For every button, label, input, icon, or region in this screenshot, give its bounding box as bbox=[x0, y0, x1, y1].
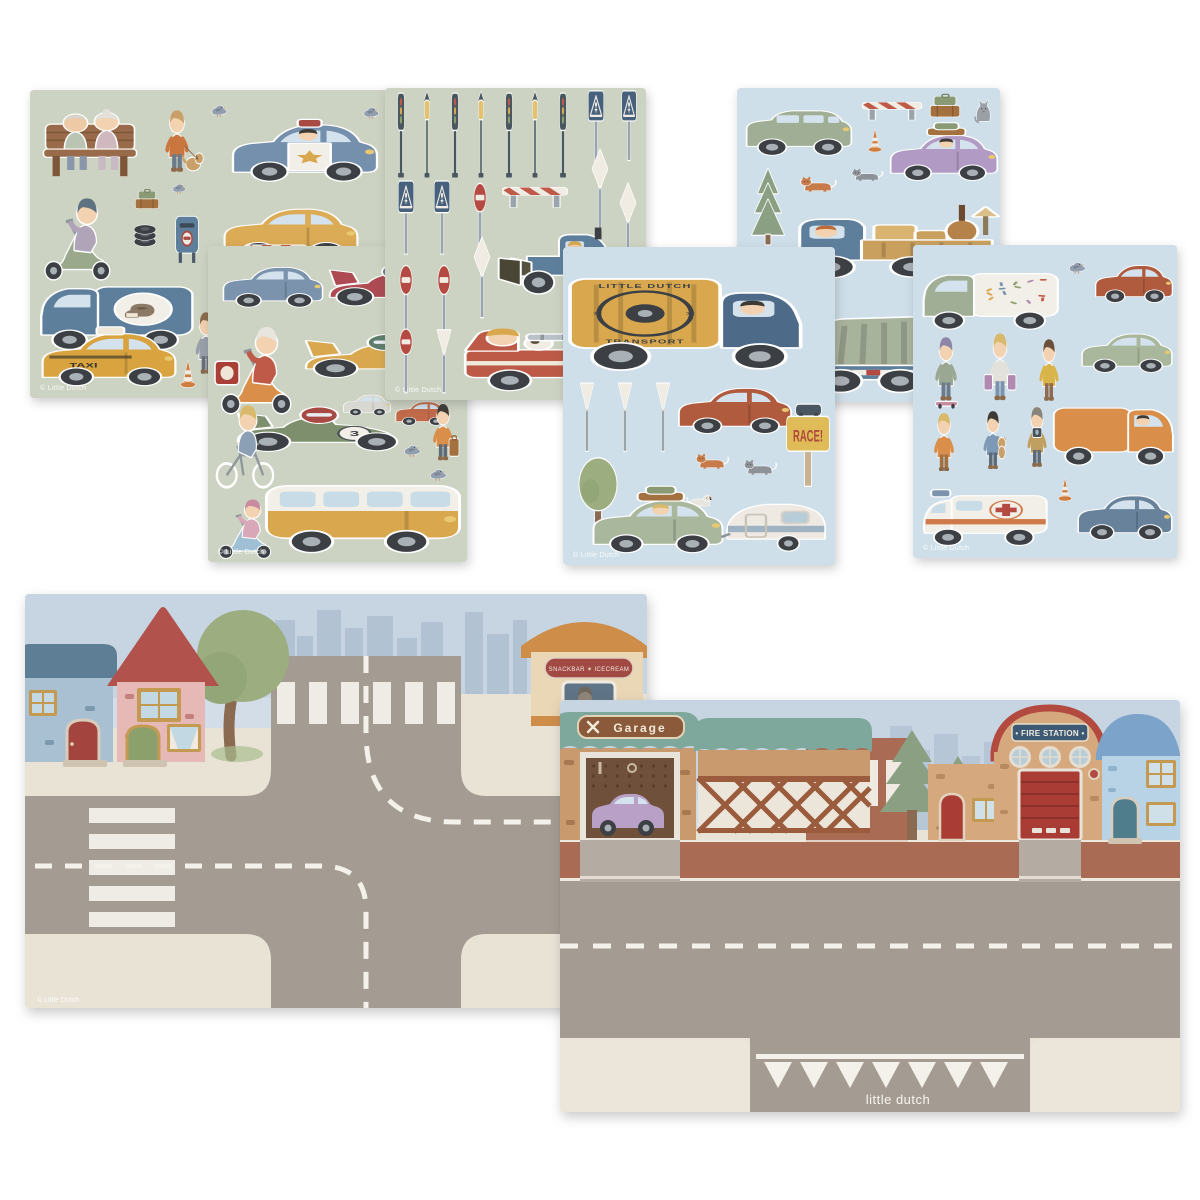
barrier-sticker bbox=[503, 188, 566, 208]
van-sticker bbox=[925, 274, 1057, 328]
blue-town-house bbox=[1096, 714, 1180, 844]
lamp-sticker bbox=[478, 92, 484, 178]
pigeon-sticker bbox=[431, 470, 446, 481]
person-sticker bbox=[1029, 407, 1045, 467]
person-sticker bbox=[936, 413, 953, 471]
cat-sticker bbox=[696, 454, 728, 469]
trafficlight-sticker bbox=[560, 94, 566, 178]
sticker-sheet-transport-camping-svg: LITTLE DUTCHTRANSPORT✶✶RACE! bbox=[563, 247, 835, 565]
van-sticker bbox=[1055, 409, 1172, 465]
car-sticker bbox=[1083, 334, 1171, 372]
catsit-sticker bbox=[975, 100, 990, 122]
snackbar-sign-text: SNACKBAR ✶ ICECREAM bbox=[549, 666, 630, 673]
person-sticker bbox=[435, 404, 459, 460]
pigeon-sticker bbox=[364, 108, 378, 119]
garage-sign-text: Garage bbox=[613, 721, 666, 735]
person-sticker bbox=[985, 411, 1006, 469]
scooter-sticker bbox=[46, 198, 109, 279]
porthole-windows bbox=[1011, 748, 1090, 767]
playmat-town-svg: little dutch Garage bbox=[560, 700, 1180, 1112]
barrier-sticker bbox=[863, 102, 921, 119]
noentry-sticker bbox=[400, 330, 412, 393]
noentry-sticker bbox=[400, 266, 412, 337]
car-sticker bbox=[1096, 266, 1171, 302]
sticker-sheet-city-kids-svg bbox=[913, 245, 1177, 558]
blue-house bbox=[25, 644, 117, 767]
crosssign-sticker bbox=[435, 182, 450, 254]
fire-station-driveway bbox=[1019, 840, 1081, 882]
playmat-street-svg: SNACKBAR ✶ ICECREAM © Little Dutch bbox=[25, 594, 647, 1008]
suitcases-sticker bbox=[931, 94, 960, 116]
pine-sticker bbox=[752, 169, 784, 244]
racesign-sticker: RACE! bbox=[787, 405, 829, 486]
bus-sticker bbox=[268, 487, 458, 552]
bench-sticker bbox=[44, 109, 136, 176]
caravan-sticker bbox=[721, 505, 824, 551]
car-sticker bbox=[224, 268, 322, 307]
lamp-sticker bbox=[532, 92, 538, 178]
car-sticker bbox=[234, 120, 376, 181]
garage-driveway bbox=[580, 840, 680, 882]
svg-text:✶: ✶ bbox=[684, 310, 696, 317]
person-sticker bbox=[1041, 339, 1057, 400]
crosssign-sticker bbox=[399, 182, 414, 254]
svg-text:3: 3 bbox=[350, 429, 360, 438]
yield-sticker bbox=[437, 330, 451, 392]
alarm-bell bbox=[1089, 769, 1099, 779]
product-photo-little-dutch-sticker-set: TAXI© Little Dutch123© Little Dutch© Lit… bbox=[0, 0, 1200, 1200]
diamond-sticker bbox=[592, 149, 607, 229]
ambulance-sticker bbox=[925, 490, 1046, 545]
pigeon-sticker bbox=[1070, 263, 1085, 274]
suv-sticker bbox=[747, 111, 850, 155]
scooter-sticker bbox=[216, 327, 290, 413]
yield-sticker bbox=[619, 384, 632, 451]
lattice-fence bbox=[698, 776, 870, 833]
noentry-sticker bbox=[438, 266, 450, 337]
playmat-town-garage-firestation: little dutch Garage bbox=[560, 700, 1180, 1112]
pigeon-sticker bbox=[173, 184, 185, 193]
tires-sticker bbox=[134, 225, 155, 246]
cat-sticker bbox=[801, 177, 836, 192]
cone-sticker bbox=[1059, 479, 1071, 501]
crosssign-sticker bbox=[589, 92, 604, 160]
mat-copyright: © Little Dutch bbox=[37, 996, 79, 1004]
pigeon-sticker bbox=[212, 106, 226, 117]
scooter-sticker bbox=[220, 500, 270, 558]
yield-sticker bbox=[657, 384, 670, 451]
car-sticker bbox=[680, 389, 790, 433]
sticker-sheet-transport-camping: LITTLE DUTCHTRANSPORT✶✶RACE!© Little Dut… bbox=[563, 247, 835, 565]
car-sticker bbox=[344, 395, 390, 415]
person-sticker bbox=[985, 333, 1016, 400]
person-sticker bbox=[936, 337, 957, 409]
mailbox-sticker bbox=[176, 217, 198, 263]
diamond-sticker bbox=[474, 237, 489, 317]
racecar-sticker: 3 bbox=[239, 408, 396, 451]
cat-sticker bbox=[852, 169, 882, 181]
cone-sticker bbox=[869, 130, 881, 152]
trafficlight-sticker bbox=[452, 94, 458, 178]
sticker-sheet-city-kids: © Little Dutch bbox=[913, 245, 1177, 558]
fire-station-sign-text: • FIRE STATION • bbox=[1015, 729, 1084, 738]
playmat-street-crossing: SNACKBAR ✶ ICECREAM © Little Dutch bbox=[25, 594, 647, 1008]
yield-sticker bbox=[581, 384, 594, 451]
suitcases-sticker bbox=[136, 190, 159, 209]
svg-text:✶: ✶ bbox=[591, 310, 603, 317]
red-door bbox=[67, 720, 99, 762]
brand-wordmark: little dutch bbox=[866, 1092, 931, 1107]
lamp-sticker bbox=[424, 92, 430, 178]
cat-sticker bbox=[744, 460, 776, 475]
pigeon-sticker bbox=[405, 446, 420, 457]
svg-text:RACE!: RACE! bbox=[793, 427, 823, 445]
truckbox-sticker: LITTLE DUTCHTRANSPORT✶✶ bbox=[572, 280, 799, 369]
trafficlight-sticker bbox=[398, 94, 404, 178]
trafficlight-sticker bbox=[506, 94, 512, 178]
person-sticker bbox=[167, 110, 203, 171]
car-sticker bbox=[892, 123, 997, 180]
svg-text:LITTLE DUTCH: LITTLE DUTCH bbox=[599, 283, 692, 289]
main-road bbox=[560, 880, 1180, 1038]
green-door bbox=[127, 726, 159, 762]
car-sticker bbox=[1079, 496, 1171, 539]
cone-sticker bbox=[181, 361, 196, 388]
crosssign-sticker bbox=[622, 92, 636, 160]
